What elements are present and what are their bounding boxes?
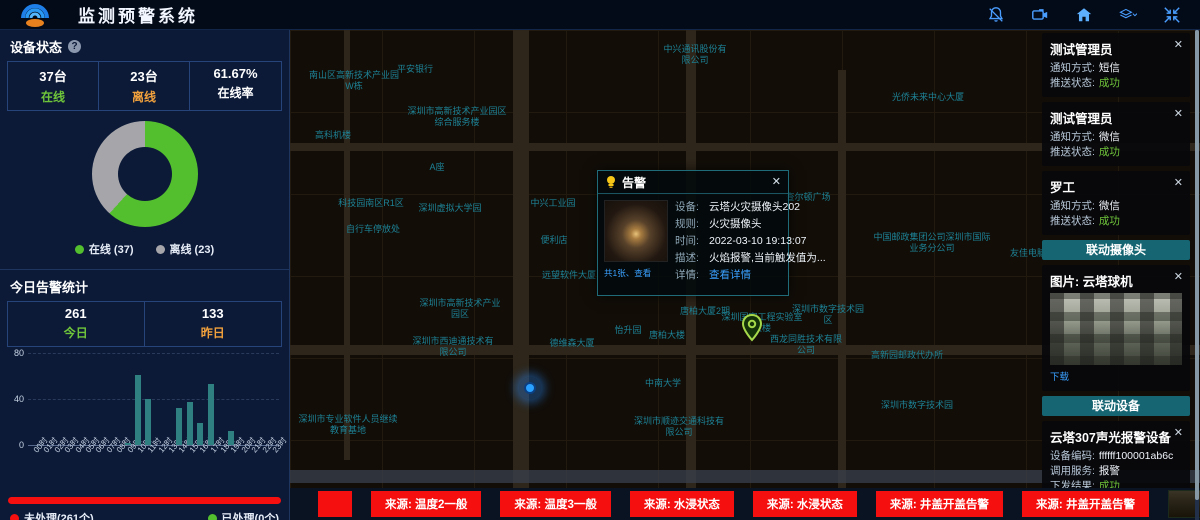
camera-card: 图片: 云塔球机 ✕ 下载	[1042, 265, 1190, 391]
row-value: 成功	[1099, 214, 1120, 229]
today-cell: 261 今日	[8, 302, 145, 346]
bar-column: 11时	[143, 353, 153, 445]
notify-status-row: 推送状态:成功	[1050, 145, 1182, 160]
device-code-row: 设备编码: ffffff100001ab6c	[1050, 449, 1182, 464]
alert-ticker-bar: 来源: 温度2一般来源: 温度3一般来源: 水浸状态来源: 水浸状态来源: 井盖…	[290, 488, 1200, 520]
yesterday-count: 133	[147, 306, 280, 321]
row-label: 调用服务:	[1050, 464, 1095, 479]
linked-device-section-header[interactable]: 联动设备	[1042, 396, 1190, 416]
online-rate-label: 在线率	[192, 84, 279, 101]
legend-dot-gray	[156, 245, 165, 254]
bar-chart-y-axis: 04080	[8, 353, 26, 445]
bar-column: 15时	[185, 353, 195, 445]
bar-column: 10时	[133, 353, 143, 445]
notification-cards: 测试管理员✕通知方式:短信推送状态:成功测试管理员✕通知方式:微信推送状态:成功…	[1042, 33, 1192, 235]
alert-detail-rows: 设备: 云塔火灾摄像头202 规则: 火灾摄像头 时间: 2022-03-10 …	[675, 200, 826, 282]
close-icon[interactable]: ✕	[772, 177, 781, 188]
row-value: 火灾摄像头	[709, 218, 762, 231]
layers-icon[interactable]	[1118, 5, 1138, 25]
close-icon[interactable]: ✕	[1174, 270, 1183, 283]
row-label: 设备:	[675, 201, 709, 214]
left-stats-panel: 设备状态 ? 37台 在线 23台 离线 61.67% 在线率 在线 (37)	[0, 30, 290, 520]
bar-x-label: 23时	[270, 435, 289, 455]
row-label: 推送状态:	[1050, 145, 1095, 160]
notify-method-row: 通知方式:微信	[1050, 199, 1182, 214]
bar-column: 07时	[102, 353, 112, 445]
map-road	[513, 30, 529, 520]
row-value: 微信	[1099, 199, 1120, 214]
map-place-label: 中兴工业园	[522, 198, 584, 209]
online-count: 37台	[10, 66, 96, 85]
compress-icon[interactable]	[1162, 5, 1182, 25]
row-value: 成功	[1099, 76, 1120, 91]
yesterday-cell: 133 昨日	[145, 302, 282, 346]
offline-count-cell: 23台 离线	[99, 62, 190, 110]
bar-column: 05时	[81, 353, 91, 445]
bar-column: 18时	[216, 353, 226, 445]
linked-camera-section-header[interactable]: 联动摄像头	[1042, 240, 1190, 260]
bar-column: 16时	[195, 353, 205, 445]
map-place-label: 中兴通讯股份有限公司	[663, 44, 727, 66]
map-place-label: 深圳市高新技术产业园区综合服务楼	[405, 106, 509, 128]
snapshot-links[interactable]: 共1张、查看	[604, 267, 668, 279]
notification-title: 测试管理员	[1050, 39, 1182, 58]
bar	[145, 399, 151, 445]
right-scrollbar[interactable]	[1195, 30, 1199, 520]
map-place-label: 深圳市数字技术园区	[792, 304, 864, 326]
app-logo-icon	[20, 2, 50, 28]
ticker-item[interactable]: 来源: 温度3一般	[500, 491, 610, 517]
top-header: 监测预警系统	[0, 0, 1200, 30]
section-title: 今日告警统计	[10, 277, 88, 296]
alert-snapshot-block: 共1张、查看	[604, 200, 668, 282]
row-label: 时间:	[675, 235, 709, 248]
close-icon[interactable]: ✕	[1174, 176, 1183, 189]
home-icon[interactable]	[1074, 5, 1094, 25]
map-place-label: 深圳市数字技术园	[870, 400, 964, 411]
alert-row-device: 设备: 云塔火灾摄像头202	[675, 201, 826, 214]
ticker-item[interactable]: 来源: 水浸状态	[630, 491, 734, 517]
unhandled-label: 未处理(261个)	[24, 510, 94, 520]
download-link[interactable]: 下载	[1050, 369, 1069, 383]
map-place-label: 深圳虚拟大学园	[408, 203, 492, 214]
bar-column: 17时	[206, 353, 216, 445]
map-pin-icon[interactable]	[741, 314, 763, 342]
y-tick-label: 0	[19, 440, 24, 450]
ticker-items: 来源: 温度2一般来源: 温度3一般来源: 水浸状态来源: 水浸状态来源: 井盖…	[371, 491, 1149, 517]
bar-column: 23时	[268, 353, 278, 445]
bar-column: 08时	[112, 353, 122, 445]
bar-column: 02时	[50, 353, 60, 445]
notification-title: 测试管理员	[1050, 108, 1182, 127]
device-location-marker[interactable]	[519, 377, 541, 399]
row-value: 报警	[1099, 464, 1120, 479]
bar	[208, 384, 214, 445]
offline-label: 离线	[101, 88, 187, 105]
donut-chart	[92, 121, 198, 227]
handled-legend: 已处理(0个)	[208, 510, 279, 520]
online-rate-cell: 61.67% 在线率	[190, 62, 281, 110]
today-bar-chart-plot: 00时01时02时03时04时05时06时07时08时09时10时11时12时1…	[29, 353, 278, 445]
marker-core	[524, 382, 536, 394]
map-place-label: A座	[422, 162, 452, 173]
row-label: 描述:	[675, 252, 709, 265]
map-place-label: 高新园邮政代办所	[860, 350, 954, 361]
alert-row-detail: 详情: 查看详情	[675, 269, 826, 282]
row-label: 推送状态:	[1050, 76, 1095, 91]
fire-snapshot-image[interactable]	[604, 200, 668, 262]
notification-card: 测试管理员✕通知方式:微信推送状态:成功	[1042, 102, 1190, 166]
notify-method-row: 通知方式:短信	[1050, 61, 1182, 76]
map-place-label: 远望软件大厦	[534, 270, 604, 281]
legend-label: 在线 (37)	[89, 241, 134, 257]
unhandled-progress-bar	[8, 497, 281, 504]
y-tick-label: 80	[14, 348, 24, 358]
row-value: 短信	[1099, 61, 1120, 76]
map-place-label: 南山区高新技术产业园W栋	[308, 70, 400, 92]
close-icon[interactable]: ✕	[1174, 426, 1183, 439]
device-status-table: 37台 在线 23台 离线 61.67% 在线率	[7, 61, 282, 111]
notify-status-row: 推送状态:成功	[1050, 76, 1182, 91]
bar-column: 21时	[247, 353, 257, 445]
legend-offline[interactable]: 离线 (23)	[156, 241, 215, 257]
online-count-cell: 37台 在线	[8, 62, 99, 110]
alert-popup-body: 共1张、查看 设备: 云塔火灾摄像头202 规则: 火灾摄像头 时间: 2022…	[598, 194, 788, 286]
handled-label: 已处理(0个)	[222, 510, 279, 520]
alert-row-description: 描述: 火焰报警,当前触发值为...	[675, 252, 826, 265]
map-place-label: 深圳市高新技术产业园区	[418, 298, 502, 320]
offline-count: 23台	[101, 66, 187, 85]
view-detail-link[interactable]: 查看详情	[709, 269, 751, 282]
row-value: 云塔火灾摄像头202	[709, 201, 800, 214]
map-place-label: 深圳市顺迹交通科技有限公司	[632, 416, 726, 438]
today-count: 261	[10, 306, 142, 321]
today-alerts-header: 今日告警统计	[0, 270, 289, 301]
unhandled-legend: 未处理(261个)	[10, 510, 94, 520]
bar-column: 19时	[226, 353, 236, 445]
bar-column: 06时	[91, 353, 101, 445]
row-value: ffffff100001ab6c	[1099, 449, 1173, 464]
today-label: 今日	[10, 324, 142, 341]
legend-online[interactable]: 在线 (37)	[75, 241, 134, 257]
bar-column: 09时	[123, 353, 133, 445]
help-icon[interactable]: ?	[68, 40, 81, 53]
map-place-label: 高科机楼	[308, 130, 358, 141]
map-place-label: 科技园南区R1区	[326, 198, 416, 209]
bar	[135, 375, 141, 445]
alert-popup: 告警 ✕ 共1张、查看 设备: 云塔火灾摄像头202 规则: 火灾摄像头	[597, 170, 789, 296]
row-label: 设备编码:	[1050, 449, 1095, 464]
right-notification-panel: 测试管理员✕通知方式:短信推送状态:成功测试管理员✕通知方式:微信推送状态:成功…	[1042, 30, 1192, 520]
ticker-item[interactable]: 来源: 水浸状态	[753, 491, 857, 517]
bar-column: 14时	[174, 353, 184, 445]
online-rate: 61.67%	[192, 66, 279, 81]
close-icon[interactable]: ✕	[1174, 107, 1183, 120]
yesterday-label: 昨日	[147, 324, 280, 341]
ticker-item[interactable]: 来源: 温度2一般	[371, 491, 481, 517]
progress-legend: 未处理(261个) 已处理(0个)	[10, 510, 279, 520]
map-place-label: 深圳市专业软件人员继续教育基地	[298, 414, 398, 436]
page-title: 监测预警系统	[78, 2, 198, 27]
device-card-title: 云塔307声光报警设备	[1050, 427, 1182, 446]
alert-popup-header: 告警 ✕	[598, 171, 788, 194]
monitoring-dashboard: 监测预警系统 中兴通讯股份有限公司南山区高新技术产业	[0, 0, 1200, 520]
bar-column: 13时	[164, 353, 174, 445]
online-label: 在线	[10, 88, 96, 105]
section-title: 设备状态	[10, 37, 62, 56]
ticker-item-partial[interactable]	[318, 491, 352, 517]
device-status-header: 设备状态 ?	[0, 30, 289, 61]
bar-column: 04时	[71, 353, 81, 445]
notification-card: 罗工✕通知方式:微信推送状态:成功	[1042, 171, 1190, 235]
row-label: 规则:	[675, 218, 709, 231]
row-label: 详情:	[675, 269, 709, 282]
service-row: 调用服务: 报警	[1050, 464, 1182, 479]
map-place-label: 西龙同胜技术有限公司	[768, 334, 844, 356]
ticker-item[interactable]: 来源: 井盖开盖告警	[876, 491, 1003, 517]
legend-dot-green	[75, 245, 84, 254]
ticker-item[interactable]: 来源: 井盖开盖告警	[1022, 491, 1149, 517]
bar	[187, 402, 193, 445]
row-label: 通知方式:	[1050, 61, 1095, 76]
map-place-label: 唐柏大楼	[642, 330, 692, 341]
notify-method-row: 通知方式:微信	[1050, 130, 1182, 145]
map-place-label: 自行车停放处	[338, 224, 408, 235]
row-value: 微信	[1099, 130, 1120, 145]
notification-card: 测试管理员✕通知方式:短信推送状态:成功	[1042, 33, 1190, 97]
alert-popup-title: 告警	[622, 174, 767, 191]
map-place-label: 平安银行	[390, 64, 440, 75]
legend-label: 离线 (23)	[170, 241, 215, 257]
alert-row-time: 时间: 2022-03-10 19:13:07	[675, 235, 826, 248]
scrollbar-thumb[interactable]	[1195, 30, 1199, 500]
donut-legend: 在线 (37) 离线 (23)	[75, 241, 214, 257]
device-status-donut-chart: 在线 (37) 离线 (23)	[0, 111, 289, 257]
header-icon-bar	[986, 0, 1182, 30]
row-value: 火焰报警,当前触发值为...	[709, 252, 826, 265]
bar-column: 01时	[39, 353, 49, 445]
bar-column: 00时	[29, 353, 39, 445]
y-tick-label: 40	[14, 394, 24, 404]
bar-column: 22时	[258, 353, 268, 445]
map-place-label: 中国邮政集团公司深圳市国际业务分公司	[872, 232, 992, 254]
video-camera-icon[interactable]	[1030, 5, 1050, 25]
today-bar-chart: 04080 00时01时02时03时04时05时06时07时08时09时10时1…	[8, 353, 281, 471]
row-label: 通知方式:	[1050, 130, 1095, 145]
legend-dot-red	[10, 514, 19, 520]
bell-off-icon[interactable]	[986, 5, 1006, 25]
row-label: 通知方式:	[1050, 199, 1095, 214]
map-place-label: 深圳市西迪通技术有限公司	[410, 336, 496, 358]
notification-title: 罗工	[1050, 177, 1182, 196]
legend-dot-green	[208, 514, 217, 520]
map-place-label: 便利店	[534, 235, 574, 246]
notify-status-row: 推送状态:成功	[1050, 214, 1182, 229]
map-place-label: 德维森大厦	[542, 338, 602, 349]
map-place-label: 光侨未来中心大厦	[880, 92, 976, 103]
camera-card-title: 图片: 云塔球机	[1050, 271, 1182, 290]
alarm-lamp-icon	[605, 175, 617, 189]
row-value: 2022-03-10 19:13:07	[709, 235, 807, 248]
bar-column: 03时	[60, 353, 70, 445]
camera-snapshot-image[interactable]	[1050, 293, 1182, 365]
map-road	[344, 30, 350, 460]
alert-row-rule: 规则: 火灾摄像头	[675, 218, 826, 231]
bar-column: 20时	[237, 353, 247, 445]
row-label: 推送状态:	[1050, 214, 1095, 229]
close-icon[interactable]: ✕	[1174, 38, 1183, 51]
map-road	[838, 70, 846, 520]
row-value: 成功	[1099, 145, 1120, 160]
today-alerts-table: 261 今日 133 昨日	[7, 301, 282, 347]
bar-column: 12时	[154, 353, 164, 445]
map-place-label: 中南大学	[638, 378, 688, 389]
